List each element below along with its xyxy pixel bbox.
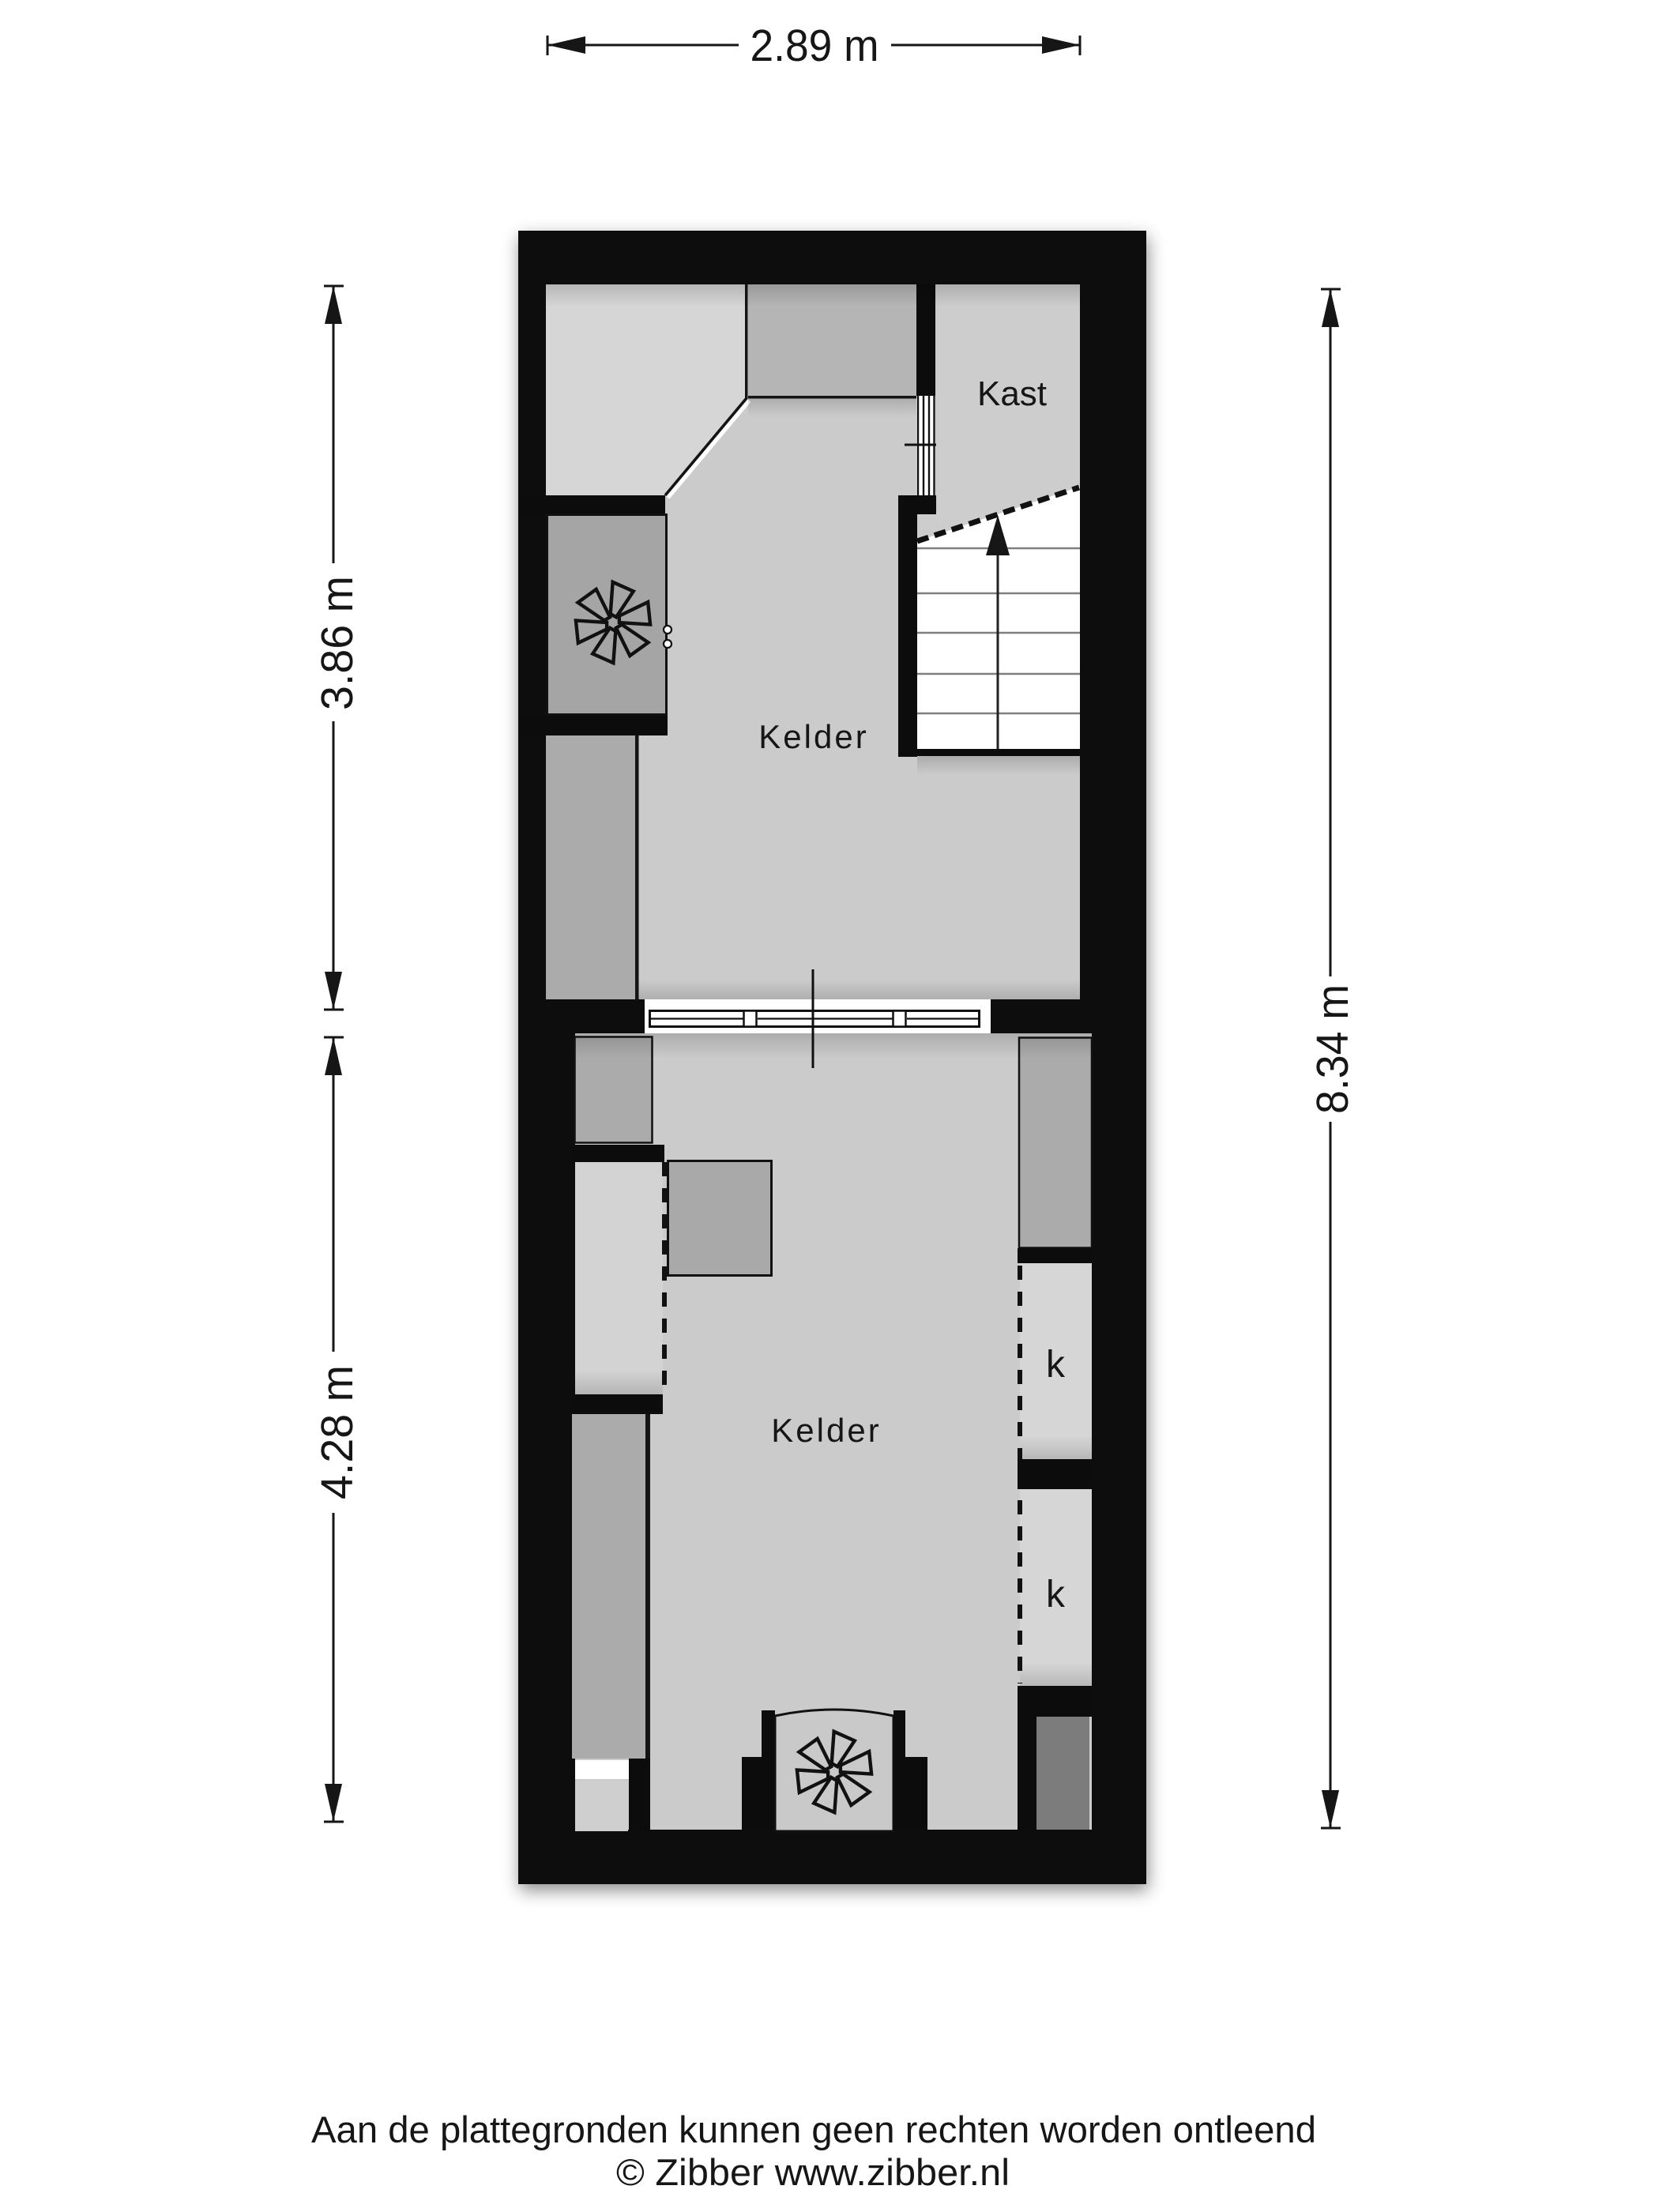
- svg-text:4.28 m: 4.28 m: [312, 1365, 363, 1499]
- svg-text:2.89 m: 2.89 m: [750, 21, 879, 71]
- svg-text:3.86 m: 3.86 m: [312, 576, 363, 710]
- svg-text:8.34 m: 8.34 m: [1307, 984, 1358, 1114]
- svg-text:Kelder: Kelder: [758, 718, 868, 755]
- svg-text:k: k: [1046, 1574, 1066, 1616]
- svg-text:k: k: [1046, 1344, 1066, 1386]
- svg-text:Aan de plattegronden kunnen ge: Aan de plattegronden kunnen geen rechten…: [311, 2109, 1316, 2151]
- svg-text:© Zibber www.zibber.nl: © Zibber www.zibber.nl: [616, 2152, 1010, 2194]
- svg-text:Kelder: Kelder: [771, 1412, 881, 1449]
- svg-text:Kast: Kast: [977, 374, 1047, 413]
